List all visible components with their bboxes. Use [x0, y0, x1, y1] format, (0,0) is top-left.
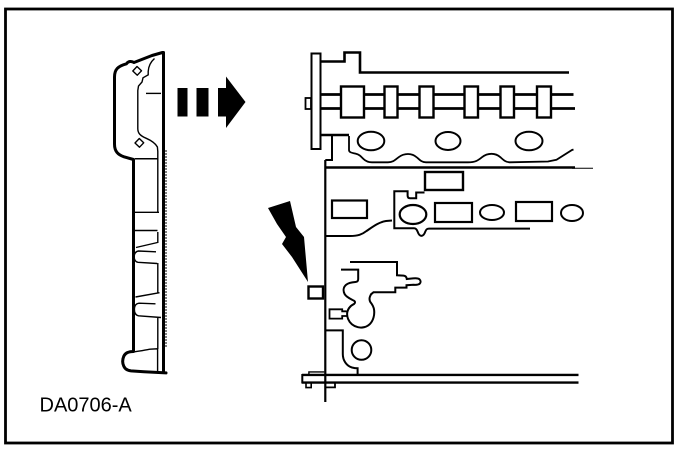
- svg-text:DA0706-A: DA0706-A: [40, 395, 133, 417]
